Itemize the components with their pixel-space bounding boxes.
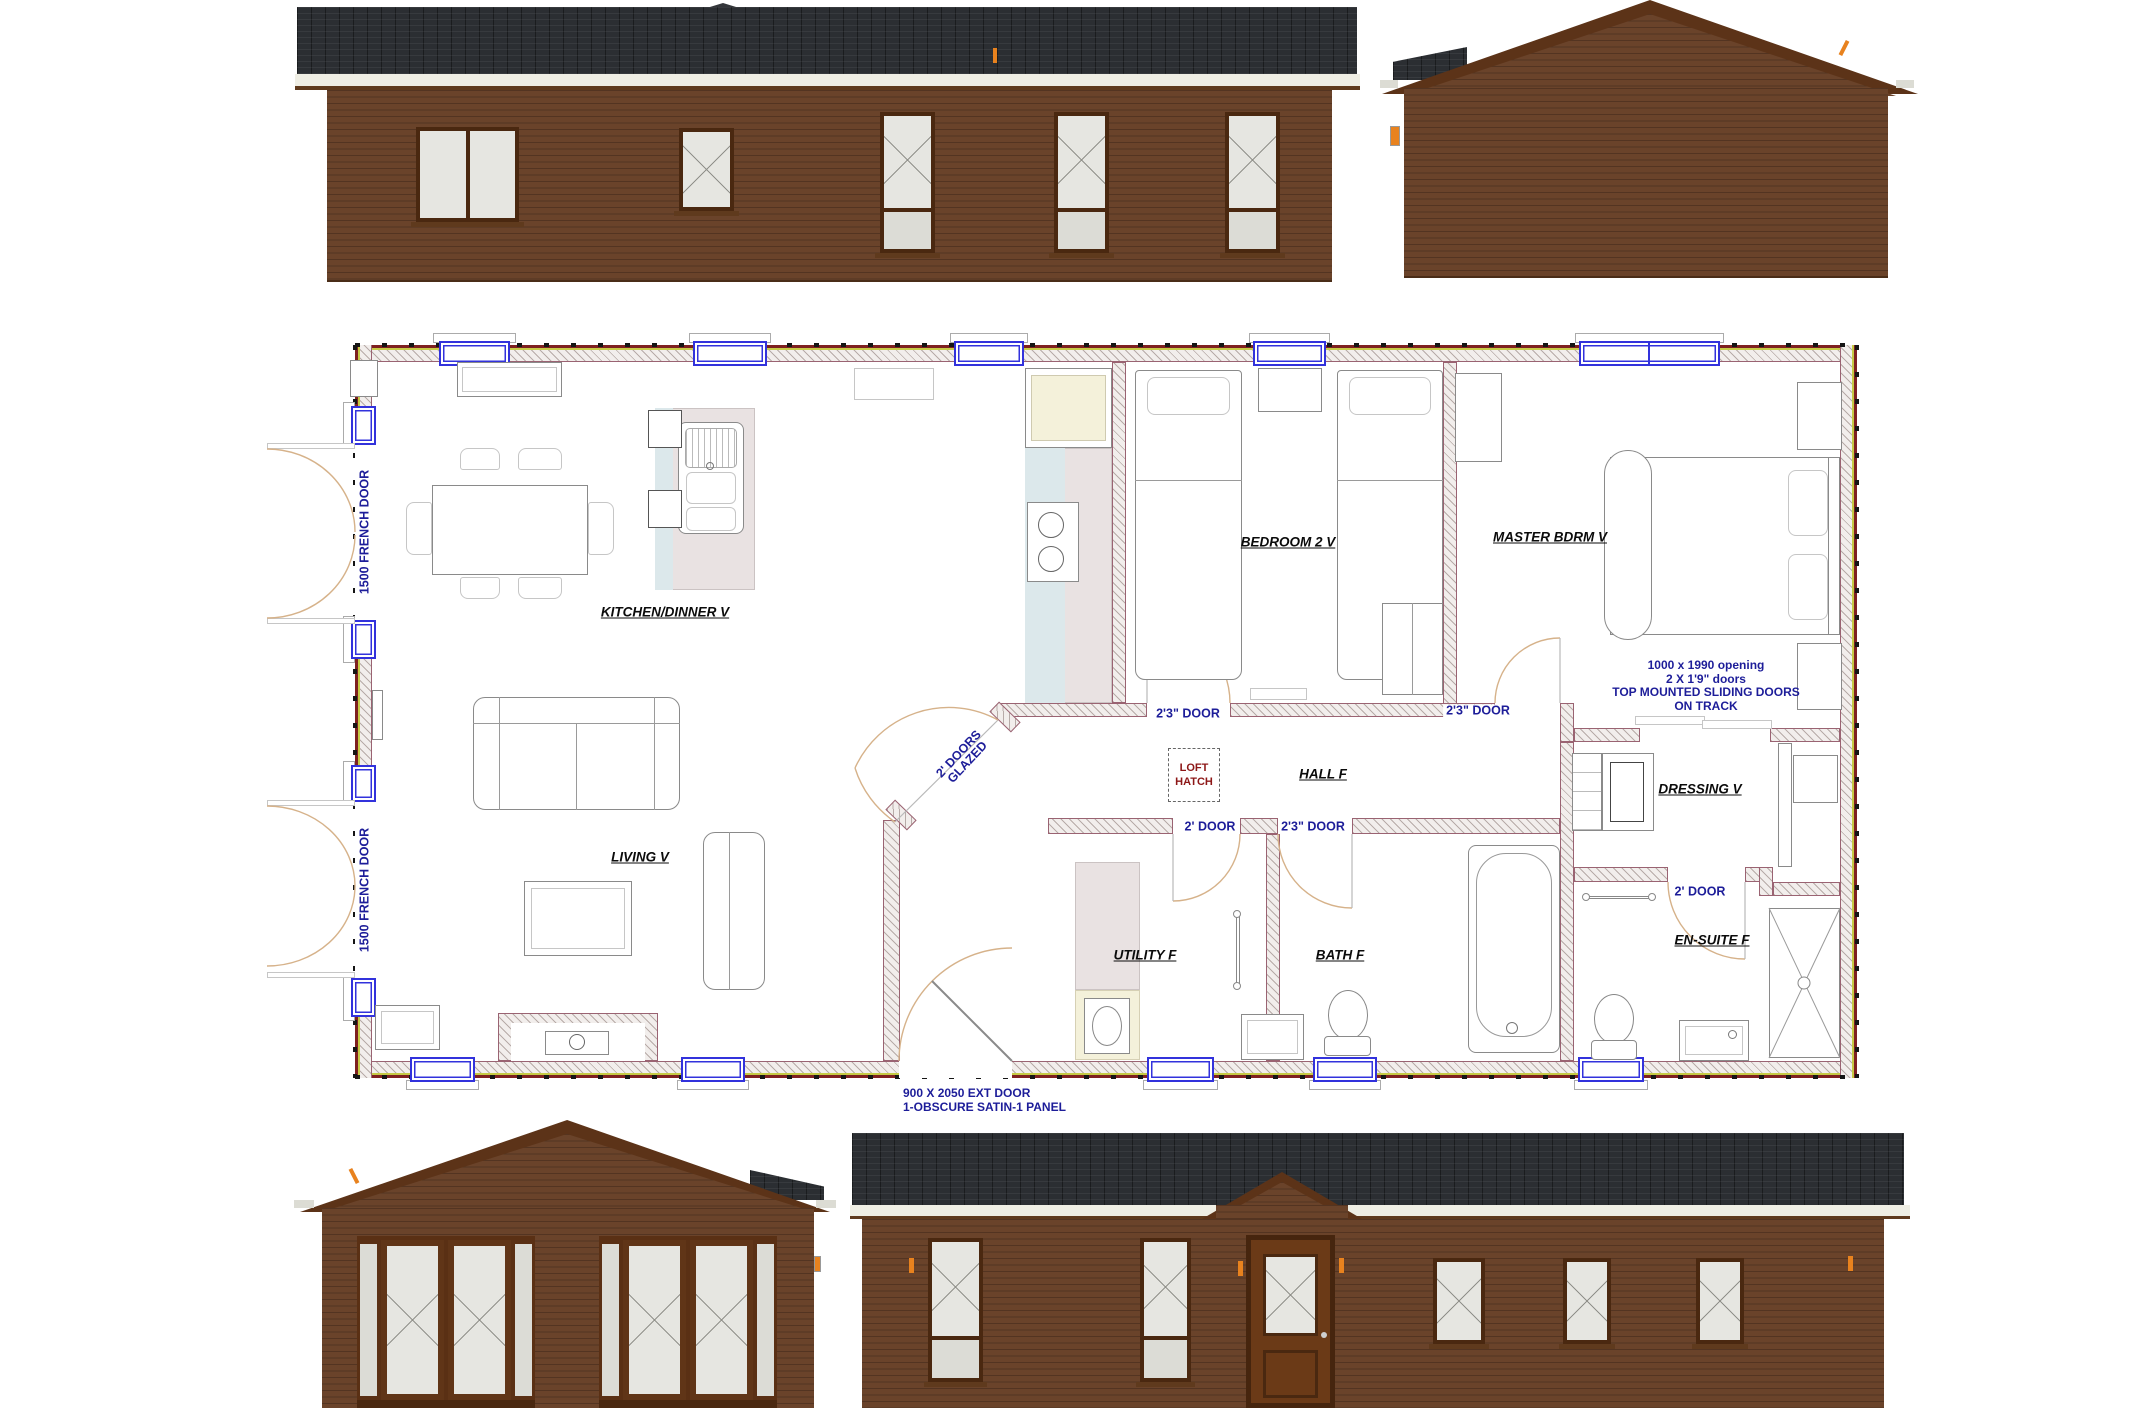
door-swing: [267, 449, 355, 532]
rail-end: [1582, 893, 1590, 901]
orange-mark: [1839, 40, 1850, 56]
eave-end: [1380, 80, 1398, 88]
bath-label: BATH F: [1316, 948, 1365, 963]
sideboard-inner: [462, 367, 557, 392]
rail-end: [1648, 893, 1656, 901]
headboard: [1828, 457, 1840, 635]
sliding-door-note: 1000 x 1990 opening 2 X 1'9" doors TOP M…: [1606, 659, 1806, 713]
wall-jog: [1759, 867, 1773, 896]
bedside-cabinet: [1258, 368, 1322, 412]
wall-light: [1848, 1256, 1853, 1271]
window: [693, 341, 767, 366]
mullion: [466, 131, 470, 218]
dressing-unit: [1778, 743, 1792, 867]
sliding-door-panel: [1635, 716, 1705, 725]
ensuite-door-label: 2' DOOR: [1672, 886, 1729, 899]
wall-light: [814, 1256, 821, 1272]
master-door-label: 2'3" DOOR: [1443, 705, 1513, 718]
threshold: [599, 1400, 777, 1408]
wall-kitchen-bed2: [1112, 362, 1126, 703]
bed-line: [1135, 480, 1242, 481]
door-leaf: [448, 1240, 511, 1400]
bed-line: [1337, 480, 1443, 481]
toilet-cistern: [1324, 1036, 1371, 1056]
towel-rail: [1586, 896, 1652, 899]
window-sill: [924, 1382, 987, 1387]
glass: [884, 208, 931, 249]
faucet: [706, 462, 714, 470]
fascia: [295, 74, 1360, 86]
pillow: [1147, 377, 1230, 415]
master-label: MASTER BDRM V: [1493, 530, 1607, 545]
sofa-line: [654, 697, 655, 810]
eave-end: [816, 1200, 836, 1208]
utility-door-label: 2' DOOR: [1182, 821, 1239, 834]
sidelight: [515, 1244, 532, 1396]
wall-light: [909, 1258, 914, 1273]
sliding-door-panel: [1702, 720, 1772, 729]
window: [351, 620, 376, 659]
ensuite-label: EN-SUITE F: [1674, 933, 1749, 948]
window-sill: [1692, 1344, 1748, 1349]
burner: [1038, 546, 1064, 572]
shower-x: [1769, 908, 1840, 1058]
glass: [1058, 116, 1105, 204]
chair: [406, 502, 432, 555]
bathtub-inner: [1476, 853, 1552, 1037]
window: [681, 1057, 745, 1082]
door-glass: [1263, 1254, 1318, 1336]
window-sill: [674, 211, 739, 216]
wall-cabinet: [854, 368, 934, 400]
sink-bowl: [686, 507, 736, 531]
coffee-table-inner: [531, 888, 625, 949]
window: [1578, 1057, 1644, 1082]
sofa-line: [576, 723, 577, 810]
bed: [1135, 370, 1242, 680]
window: [1313, 1057, 1377, 1082]
chair: [518, 448, 562, 470]
wall-dressing-bottom: [1574, 867, 1668, 882]
window-sill: [1049, 253, 1114, 258]
utility-door-swing: [1173, 834, 1240, 901]
pillow: [1349, 377, 1431, 415]
threshold: [357, 1400, 535, 1408]
eave-end: [1896, 80, 1914, 88]
wall-hall-top: [1000, 703, 1147, 717]
chair: [460, 577, 500, 599]
dining-table: [432, 485, 588, 575]
window-sill: [1429, 1344, 1489, 1349]
glass: [1144, 1336, 1187, 1378]
wall-dressing-top: [1770, 728, 1840, 742]
window: [1054, 112, 1109, 253]
stool: [648, 490, 682, 528]
door-knob: [1321, 1332, 1327, 1338]
gable-wall: [322, 1134, 814, 1212]
window: [1696, 1258, 1744, 1344]
sidelight: [757, 1244, 774, 1396]
rail-end: [1233, 910, 1241, 918]
front-elevation: [850, 1130, 1910, 1408]
burner: [1038, 512, 1064, 538]
wall-dressing-top: [1574, 728, 1640, 742]
chair: [588, 502, 614, 555]
utility-label: UTILITY F: [1114, 948, 1177, 963]
bath-door-swing: [1278, 834, 1352, 908]
basin-inner: [1247, 1020, 1298, 1054]
entrance-door: [1246, 1235, 1335, 1408]
window: [351, 406, 376, 445]
toilet-cistern: [1591, 1040, 1637, 1060]
stove-flue: [569, 1034, 585, 1050]
loft-hatch-label: LOFTHATCH: [1175, 761, 1213, 789]
drawing-sheet: LOFTHATCH KITCHEN/DINNER V LIVING V BEDR…: [0, 0, 2144, 1408]
living-label: LIVING V: [611, 850, 669, 865]
cabinet-top: [1031, 375, 1106, 441]
chair: [460, 448, 500, 470]
window-sill: [1559, 1344, 1615, 1349]
tall-cabinet: [1455, 373, 1502, 462]
sofa-line: [499, 697, 500, 810]
roof: [297, 7, 1357, 74]
glass: [884, 116, 931, 204]
flue-mark: [993, 48, 997, 63]
side-table-inner: [381, 1011, 434, 1044]
ext-door-swing: [899, 948, 1012, 1061]
window: [880, 112, 935, 253]
window: [1225, 112, 1280, 253]
glass: [1058, 208, 1105, 249]
door-leaf: [267, 618, 355, 624]
chair: [518, 577, 562, 599]
french-door-label: 1500 FRENCH DOOR: [359, 470, 372, 594]
meter-box: [1390, 126, 1400, 146]
stool: [648, 410, 682, 448]
window: [351, 765, 376, 802]
window: [928, 1238, 983, 1382]
wardrobe-line: [1412, 603, 1413, 695]
door-swing: [267, 886, 355, 966]
window: [679, 128, 734, 211]
wall-jog: [1560, 703, 1574, 742]
window: [416, 127, 519, 222]
glass: [1144, 1242, 1187, 1332]
right-gable-elevation: [1390, 0, 1910, 285]
door-leaf: [267, 972, 355, 978]
window: [1563, 1258, 1611, 1344]
orange-mark: [349, 1168, 360, 1184]
hall-label: HALL F: [1299, 767, 1347, 782]
french-door-set: [599, 1236, 777, 1408]
bed-throw: [1604, 450, 1652, 640]
toilet-bowl: [1594, 994, 1634, 1044]
basin-tap: [1728, 1030, 1737, 1039]
window: [1140, 1238, 1191, 1382]
bench: [1250, 688, 1307, 700]
wall-stub: [1240, 818, 1278, 834]
window: [954, 341, 1024, 366]
window: [1147, 1057, 1214, 1082]
bath-tap: [1506, 1022, 1518, 1034]
left-gable-elevation: [300, 1118, 830, 1408]
bedroom2-label: BEDROOM 2 V: [1241, 535, 1336, 550]
pillow: [1788, 470, 1828, 536]
glass: [1229, 208, 1276, 249]
chaise: [703, 832, 765, 990]
floor-plan: LOFTHATCH KITCHEN/DINNER V LIVING V BEDR…: [200, 330, 1900, 1120]
dressing-label: DRESSING V: [1658, 782, 1741, 797]
wall-hall-bottom: [1048, 818, 1173, 834]
gable-wall: [1404, 14, 1896, 96]
wall-ensuite-top: [1773, 882, 1840, 896]
bath-door-label: 2'3" DOOR: [1278, 821, 1348, 834]
master-door-swing: [1495, 638, 1560, 703]
kitchen-label: KITCHEN/DINNER V: [601, 605, 729, 620]
window: [410, 1057, 475, 1082]
door-swing: [267, 806, 355, 886]
sink-bowl: [686, 472, 736, 504]
window-sill: [411, 222, 524, 227]
door-leaf: [690, 1240, 753, 1400]
ext-door-note: 900 X 2050 EXT DOOR 1-OBSCURE SATIN-1 PA…: [903, 1087, 1066, 1114]
bedroom2-door-label: 2'3" DOOR: [1153, 708, 1223, 721]
cladding-ticks: [1855, 345, 1859, 1078]
pillow: [1788, 554, 1828, 620]
rear-elevation: [295, 3, 1360, 285]
eave-end: [294, 1200, 314, 1208]
chaise-line: [729, 832, 730, 990]
wall-hall-bottom: [1352, 818, 1560, 834]
door-panel: [1263, 1350, 1318, 1398]
glass: [932, 1336, 979, 1378]
french-door-label: 1500 FRENCH DOOR: [359, 828, 372, 952]
door-leaf: [381, 1240, 444, 1400]
window-sill: [1136, 1382, 1195, 1387]
fascia: [850, 1205, 1910, 1216]
dressing-unit: [1793, 755, 1838, 803]
wardrobe-shelves: [1572, 753, 1602, 831]
wall-lobby-left: [883, 820, 900, 1061]
door-leaf: [623, 1240, 686, 1400]
roof: [852, 1133, 1904, 1205]
corner-cabinet: [350, 360, 378, 397]
wall-light: [1339, 1258, 1344, 1273]
glass: [1229, 116, 1276, 204]
utility-worktop: [1075, 862, 1140, 990]
wall-light: [1238, 1261, 1243, 1276]
ext-door-opening: [899, 1061, 1012, 1078]
window: [1253, 341, 1326, 366]
chest: [1797, 382, 1842, 450]
window: [351, 978, 376, 1017]
glass: [932, 1242, 979, 1332]
rail-end: [1233, 982, 1241, 990]
window-mullion: [1648, 341, 1650, 366]
wall-shelf: [372, 690, 383, 740]
utility-wc-bowl: [1092, 1006, 1122, 1046]
hanging-rail: [1610, 762, 1644, 822]
toilet-bowl: [1328, 990, 1368, 1040]
sidelight: [602, 1244, 619, 1396]
window-sill: [1220, 253, 1285, 258]
french-door-set: [357, 1236, 535, 1408]
wall: [1404, 88, 1888, 278]
grab-rail: [1236, 914, 1240, 985]
sidelight: [360, 1244, 377, 1396]
window: [1433, 1258, 1485, 1344]
window-sill: [875, 253, 940, 258]
door-swing: [267, 535, 355, 618]
